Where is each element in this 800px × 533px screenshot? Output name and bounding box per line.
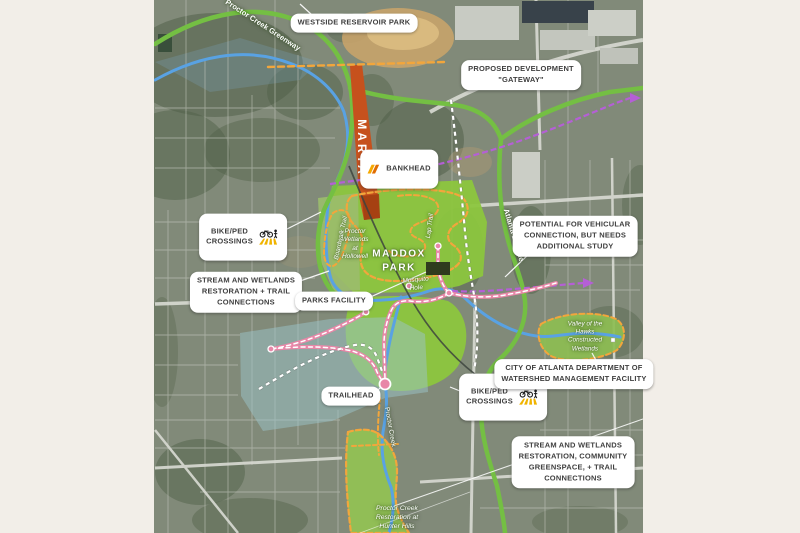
label-bike-ped-crossings-nw: BIKE/PED CROSSINGS <box>199 214 287 261</box>
bike-pedestrian-crossing-icon <box>258 218 280 257</box>
label-stream-wetlands-south: STREAM AND WETLANDS RESTORATION, COMMUNI… <box>512 436 635 488</box>
hunter-hills-label: Proctor Creek Restoration at Hunter Hill… <box>376 505 418 531</box>
label-westside-reservoir-park: WESTSIDE RESERVOIR PARK <box>291 14 418 33</box>
mosquito-hole-label: Mosquito Hole <box>402 275 430 294</box>
label-bike-ped-nw-text: BIKE/PED CROSSINGS <box>206 226 253 248</box>
label-proposed-development-gateway: PROPOSED DEVELOPMENT "GATEWAY" <box>461 60 581 90</box>
parks-facility-building <box>426 262 450 275</box>
valley-of-the-hawks-label: Valley of the Hawks Constructed Wetlands <box>568 321 602 354</box>
label-potential-vehicular-connection: POTENTIAL FOR VEHICULAR CONNECTION, BUT … <box>513 216 638 257</box>
label-parks-facility: PARKS FACILITY <box>295 292 373 311</box>
label-trailhead: TRAILHEAD <box>321 387 380 406</box>
label-stream-wetlands-west: STREAM AND WETLANDS RESTORATION + TRAIL … <box>190 272 302 313</box>
maddox-park-label: MADDOX PARK <box>372 248 425 275</box>
page-background: WESTSIDE RESERVOIR PARK PROPOSED DEVELOP… <box>0 0 800 533</box>
label-watershed-management-facility: CITY OF ATLANTA DEPARTMENT OF WATERSHED … <box>494 359 653 389</box>
label-bankhead-station: BANKHEAD <box>360 150 438 189</box>
label-bike-ped-se-text: BIKE/PED CROSSINGS <box>466 386 513 408</box>
marta-logo-icon <box>367 154 381 185</box>
label-bankhead-text: BANKHEAD <box>386 164 431 175</box>
